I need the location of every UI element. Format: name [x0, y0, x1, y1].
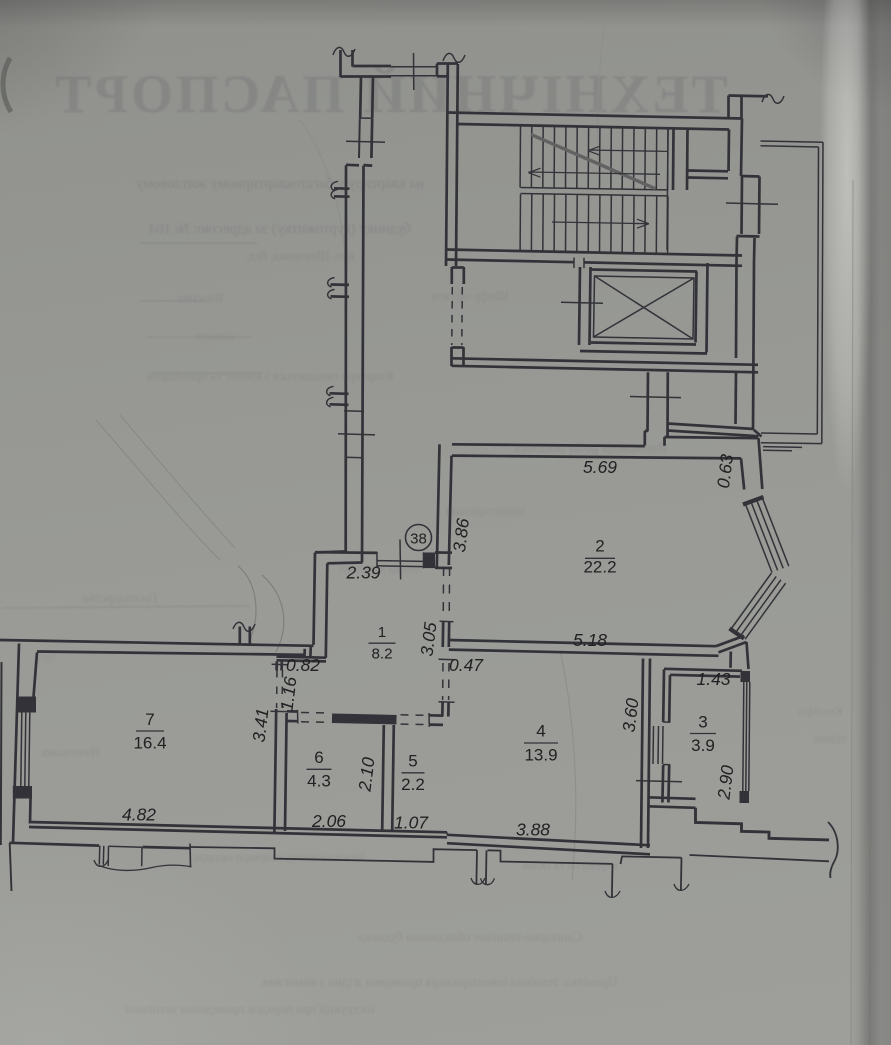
- svg-text:0.47: 0.47: [449, 655, 484, 675]
- svg-text:8.2: 8.2: [371, 646, 392, 663]
- svg-text:інструкції про порядок проведе: інструкції про порядок проведення техніч…: [125, 1001, 375, 1016]
- svg-text:6: 6: [314, 748, 323, 767]
- svg-text:Шифр об'єкта: Шифр об'єкта: [431, 288, 508, 303]
- svg-text:1.43: 1.43: [696, 669, 730, 689]
- svg-text:інвентаризації: інвентаризації: [445, 503, 525, 518]
- svg-text:1: 1: [378, 624, 386, 641]
- svg-text:будинку (гуртожитку) за адресо: будинку (гуртожитку) за адресою: № 164: [148, 221, 411, 237]
- svg-text:1.16: 1.16: [277, 675, 301, 712]
- svg-text:38: 38: [410, 531, 427, 548]
- svg-text:7: 7: [145, 710, 154, 729]
- svg-text:0.82: 0.82: [286, 655, 320, 675]
- svg-text:16.4: 16.4: [133, 734, 166, 753]
- svg-text:2.06: 2.06: [311, 811, 346, 831]
- svg-text:0.63: 0.63: [713, 453, 737, 490]
- svg-text:5: 5: [408, 752, 417, 771]
- svg-text:3: 3: [698, 713, 707, 732]
- svg-text:Начальник: Начальник: [39, 744, 99, 759]
- svg-text:вул. Шевченка, буд.: вул. Шевченка, буд.: [246, 248, 354, 263]
- svg-text:на квартиру у багатоквартирном: на квартиру у багатоквартирному житловом…: [135, 176, 424, 192]
- svg-text:3.88: 3.88: [516, 820, 550, 840]
- svg-text:3.41: 3.41: [249, 707, 273, 743]
- svg-text:Квартира складається з кімнат: Квартира складається з кімнат та приміще…: [146, 368, 394, 383]
- svg-text:Господарство: Господарство: [83, 590, 158, 605]
- svg-text:Санітарно-технічне обладнання: Санітарно-технічне обладнання будинку: [357, 929, 582, 944]
- svg-text:3.05: 3.05: [417, 621, 441, 658]
- svg-text:Загальна площа квартири склада: Загальна площа квартири складає: [194, 850, 367, 864]
- svg-text:2.2: 2.2: [401, 775, 425, 794]
- svg-text:4.3: 4.3: [307, 772, 331, 791]
- svg-text:перевірив та склав: перевірив та склав: [522, 858, 617, 872]
- svg-text:3.60: 3.60: [619, 697, 643, 734]
- svg-text:2.10: 2.10: [354, 756, 378, 794]
- svg-text:2: 2: [595, 537, 604, 556]
- svg-text:13.9: 13.9: [524, 746, 557, 765]
- svg-text:22.2: 22.2: [583, 557, 616, 576]
- svg-text:4.82: 4.82: [122, 805, 156, 825]
- svg-text:2.39: 2.39: [345, 563, 380, 583]
- svg-text:3.86: 3.86: [449, 517, 473, 554]
- svg-text:5.18: 5.18: [573, 630, 607, 650]
- svg-text:Власник: Власник: [176, 290, 224, 305]
- svg-text:3.9: 3.9: [691, 736, 715, 755]
- svg-text:2.90: 2.90: [713, 764, 737, 802]
- svg-text:5.69: 5.69: [583, 457, 617, 477]
- svg-text:кімната: кімната: [195, 329, 235, 343]
- svg-text:Кваліфік: Кваліфік: [797, 704, 842, 718]
- svg-text:1.07: 1.07: [394, 813, 429, 833]
- svg-text:Виконавець робіт технічної: Виконавець робіт технічної: [513, 440, 666, 455]
- svg-text:Примітка: технічна інвентариза: Примітка: технічна інвентаризація провед…: [262, 974, 617, 989]
- svg-text:4: 4: [536, 722, 545, 741]
- svg-text:підпис: підпис: [813, 731, 847, 745]
